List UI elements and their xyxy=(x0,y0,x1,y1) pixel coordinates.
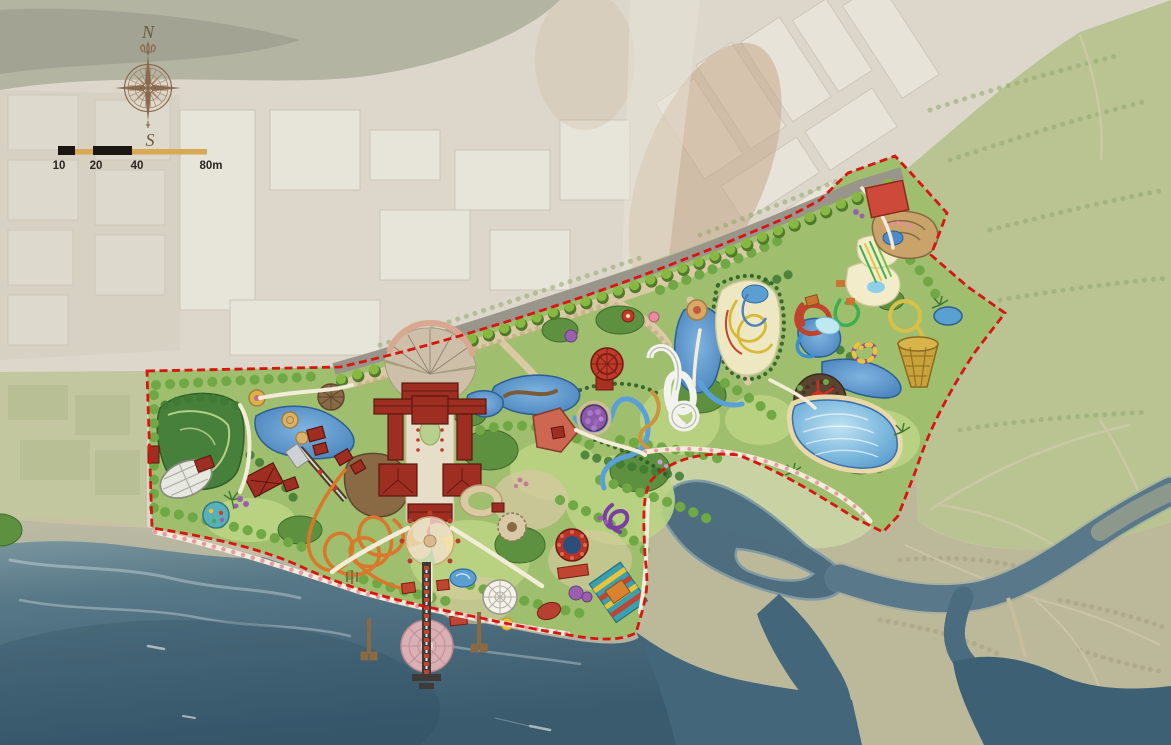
scale-tick-10: 10 xyxy=(53,160,66,172)
ferris-ride xyxy=(556,529,588,561)
scale-tick-80m: 80m xyxy=(199,160,222,172)
masterplan-map: N S 10 20 40 80m xyxy=(0,0,1171,745)
grape-pavilion xyxy=(578,402,610,434)
carousel-canopy xyxy=(483,580,517,614)
masterplan-screenshot: N S 10 20 40 80m xyxy=(0,0,1171,745)
splash-pool xyxy=(450,569,476,587)
compass-south-label: S xyxy=(146,130,155,150)
purple-pods xyxy=(569,586,583,600)
compass-north-label: N xyxy=(141,22,155,42)
scale-tick-20: 20 xyxy=(90,160,103,172)
tube-slide-garden xyxy=(716,280,780,375)
scale-tick-40: 40 xyxy=(131,160,144,172)
